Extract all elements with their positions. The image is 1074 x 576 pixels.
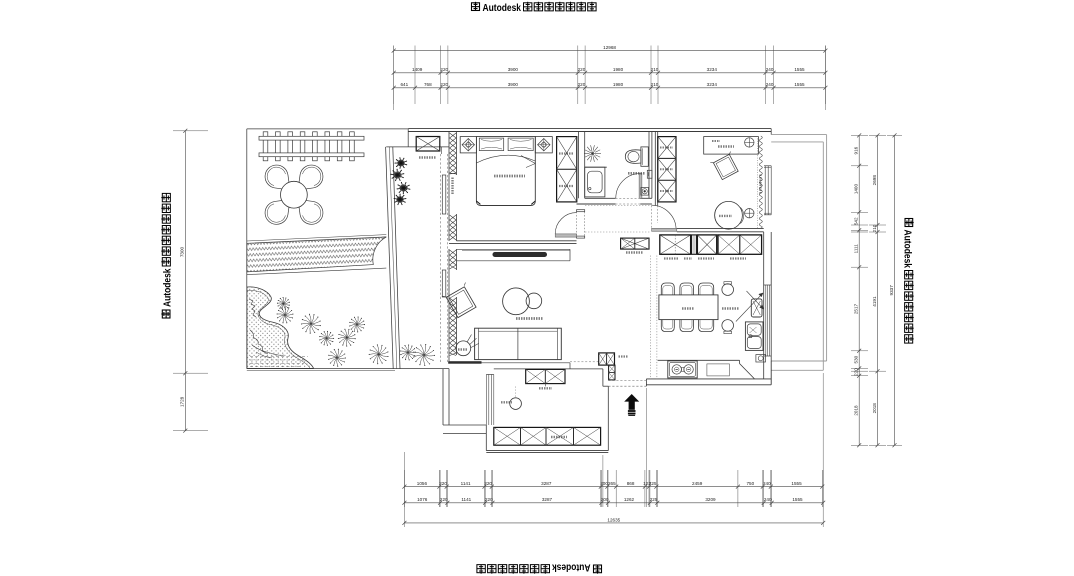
svg-text:3234: 3234: [707, 67, 718, 72]
svg-text:1141: 1141: [461, 497, 471, 502]
svg-text:2698: 2698: [872, 175, 877, 186]
svg-text:Autodesk: Autodesk: [483, 3, 522, 14]
svg-text:220: 220: [854, 368, 859, 376]
svg-text:200: 200: [601, 497, 609, 502]
svg-text:210: 210: [872, 224, 877, 232]
svg-text:220: 220: [439, 481, 447, 486]
svg-text:Autodesk: Autodesk: [552, 561, 591, 572]
svg-text:1400: 1400: [854, 184, 859, 195]
svg-text:1555: 1555: [791, 481, 802, 486]
svg-text:Autodesk: Autodesk: [163, 268, 174, 307]
svg-text:1555: 1555: [794, 67, 805, 72]
svg-text:868: 868: [627, 481, 635, 486]
svg-text:3287: 3287: [541, 481, 552, 486]
svg-text:7300: 7300: [180, 246, 185, 257]
svg-text:225: 225: [650, 497, 658, 502]
svg-text:240: 240: [766, 67, 774, 72]
svg-text:1980: 1980: [613, 67, 624, 72]
svg-text:1076: 1076: [417, 497, 428, 502]
svg-text:220: 220: [440, 82, 448, 87]
svg-text:1111: 1111: [854, 244, 859, 254]
svg-text:265: 265: [608, 481, 616, 486]
svg-text:3234: 3234: [707, 82, 718, 87]
svg-text:2517: 2517: [854, 303, 859, 314]
svg-text:768: 768: [424, 82, 432, 87]
svg-text:916: 916: [854, 146, 859, 154]
svg-text:542: 542: [854, 217, 859, 225]
svg-text:1409: 1409: [412, 67, 423, 72]
svg-text:3900: 3900: [508, 82, 519, 87]
svg-text:3900: 3900: [508, 67, 519, 72]
svg-text:220: 220: [578, 82, 586, 87]
svg-text:240: 240: [766, 82, 774, 87]
svg-text:12635: 12635: [607, 517, 620, 522]
svg-text:1555: 1555: [794, 82, 805, 87]
svg-text:1728: 1728: [180, 396, 185, 407]
svg-text:1262: 1262: [624, 497, 635, 502]
svg-text:220: 220: [578, 67, 586, 72]
svg-text:1555: 1555: [792, 497, 803, 502]
svg-text:210: 210: [651, 82, 659, 87]
svg-text:1141: 1141: [461, 481, 471, 486]
svg-text:4191: 4191: [872, 296, 877, 307]
svg-text:2018: 2018: [872, 403, 877, 414]
svg-text:3287: 3287: [542, 497, 553, 502]
svg-text:750: 750: [747, 481, 755, 486]
svg-text:Autodesk: Autodesk: [901, 230, 912, 269]
svg-text:12968: 12968: [603, 45, 616, 50]
svg-text:220: 220: [484, 481, 492, 486]
svg-text:2459: 2459: [692, 481, 703, 486]
svg-text:2018: 2018: [854, 405, 859, 416]
svg-text:220: 220: [440, 67, 448, 72]
svg-text:210: 210: [651, 67, 659, 72]
svg-text:9337: 9337: [889, 285, 894, 296]
svg-text:641: 641: [401, 82, 409, 87]
svg-text:1980: 1980: [613, 82, 624, 87]
svg-text:3209: 3209: [705, 497, 716, 502]
svg-text:240: 240: [763, 481, 771, 486]
svg-text:530: 530: [854, 355, 859, 363]
svg-text:1056: 1056: [417, 481, 428, 486]
